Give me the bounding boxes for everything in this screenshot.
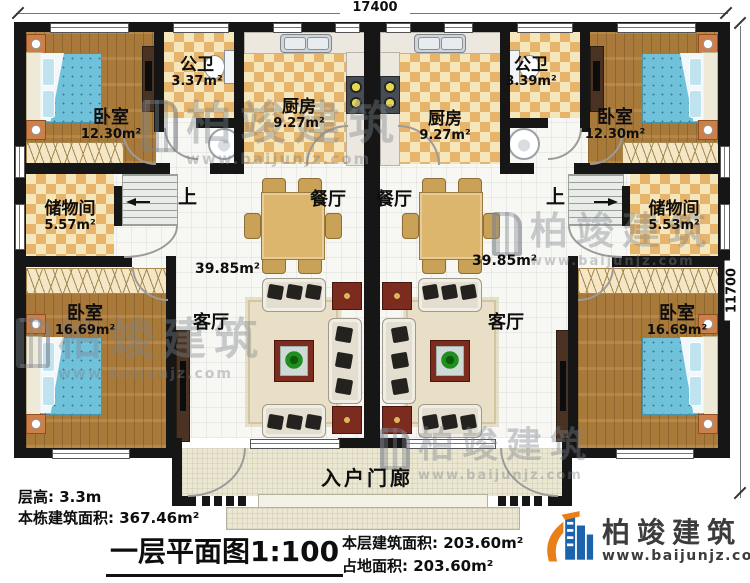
land-area-note: 占地面积: 203.60m² bbox=[342, 555, 493, 576]
sofa bbox=[262, 278, 326, 312]
room-area: 5.53m² bbox=[630, 219, 718, 234]
plant-icon bbox=[284, 350, 304, 370]
tv-icon bbox=[593, 61, 600, 91]
window bbox=[444, 23, 473, 33]
watermark-url: www.baijunjz.com bbox=[418, 468, 594, 483]
room-name: 卧室 bbox=[56, 108, 166, 128]
chair bbox=[244, 213, 261, 239]
room-area: 12.30m² bbox=[56, 128, 166, 143]
sofa bbox=[418, 278, 482, 312]
porch-column bbox=[238, 496, 246, 506]
porch-column bbox=[522, 496, 530, 506]
porch-column bbox=[214, 496, 222, 506]
watermark-url: www.baijunjz.com bbox=[530, 254, 714, 269]
sofa-set-right bbox=[380, 278, 496, 438]
building-area-note: 本栋建筑面积: 367.46m² bbox=[18, 507, 199, 528]
room-name: 厨房 bbox=[390, 110, 500, 129]
room-name: 储物间 bbox=[630, 200, 718, 219]
dimension-line-right bbox=[740, 26, 741, 498]
bed-pillow bbox=[42, 58, 55, 86]
porch-step-lower bbox=[226, 507, 520, 530]
wall bbox=[500, 32, 510, 174]
cushion bbox=[305, 284, 322, 300]
room-name: 公卫 bbox=[496, 56, 566, 75]
dining-table bbox=[419, 192, 483, 260]
wall bbox=[114, 186, 122, 226]
window bbox=[720, 146, 730, 178]
wall-center bbox=[364, 22, 380, 448]
bed-pillow bbox=[689, 342, 702, 372]
room-label-dining-left: 餐厅 bbox=[310, 185, 346, 211]
window bbox=[173, 23, 229, 33]
porch-column bbox=[226, 496, 234, 506]
room-area: 3.37m² bbox=[162, 75, 232, 90]
chair bbox=[325, 213, 342, 239]
stairs-up-label-left: 上 bbox=[178, 182, 197, 209]
room-area: 9.27m² bbox=[244, 117, 354, 132]
tv-icon bbox=[145, 61, 152, 91]
room-label-kitchen-left: 厨房 9.27m² bbox=[244, 98, 354, 132]
stairs-direction-arrow bbox=[126, 192, 150, 202]
sofa bbox=[382, 318, 416, 404]
floor-height-note: 层高: 3.3m bbox=[18, 486, 101, 507]
sink-basin bbox=[418, 37, 440, 50]
room-name: 厨房 bbox=[244, 98, 354, 117]
tv-icon bbox=[560, 361, 566, 411]
dimension-top-label: 17400 bbox=[340, 0, 410, 15]
cushion bbox=[286, 284, 303, 300]
window bbox=[517, 23, 573, 33]
room-label-living-right: 客厅 bbox=[488, 308, 524, 334]
window bbox=[386, 23, 411, 33]
floor-plan-canvas: 柏竣建筑 www.baijunjz.com 柏竣建筑 www.baijunjz.… bbox=[0, 0, 750, 583]
sink-basin bbox=[284, 37, 306, 50]
cushion bbox=[391, 378, 409, 396]
cushion bbox=[335, 378, 353, 396]
room-label-storage-right: 储物间 5.53m² bbox=[630, 200, 718, 234]
room-label-bathroom-left: 公卫 3.37m² bbox=[162, 56, 232, 90]
cushion bbox=[391, 352, 409, 370]
company-website: www.baijunjz.com bbox=[602, 548, 750, 564]
wall bbox=[14, 256, 132, 267]
cushion bbox=[422, 284, 439, 300]
room-label-living-left: 客厅 bbox=[193, 308, 229, 334]
nightstand bbox=[698, 34, 718, 54]
cushion bbox=[335, 326, 353, 344]
cushion bbox=[391, 326, 409, 344]
cushion bbox=[460, 284, 477, 300]
bed-pillow bbox=[42, 90, 55, 118]
room-label-bathroom-right: 公卫 3.39m² bbox=[496, 56, 566, 90]
cushion bbox=[267, 414, 284, 430]
wall bbox=[500, 163, 534, 174]
tv-desk bbox=[590, 46, 604, 112]
porch-wall bbox=[548, 496, 572, 506]
hall-area-right: 39.85m² bbox=[472, 253, 537, 269]
room-area: 16.69m² bbox=[622, 324, 732, 339]
stairs-direction-arrow bbox=[594, 192, 618, 202]
side-cabinet bbox=[332, 406, 362, 434]
room-label-bedroom-bottom-right: 卧室 16.69m² bbox=[622, 304, 732, 339]
dimension-right-label: 11700 bbox=[725, 261, 740, 321]
plant-icon bbox=[440, 350, 460, 370]
coffee-table bbox=[430, 340, 470, 382]
hall-area-left: 39.85m² bbox=[195, 261, 260, 277]
bed-pillow bbox=[689, 90, 702, 118]
porch-wall bbox=[172, 496, 196, 506]
room-area: 12.30m² bbox=[560, 128, 670, 143]
cushion bbox=[286, 414, 303, 430]
sink-basin bbox=[307, 37, 329, 50]
nightstand bbox=[698, 120, 718, 140]
side-cabinet bbox=[382, 282, 412, 310]
wall bbox=[500, 118, 548, 128]
room-area: 9.27m² bbox=[390, 129, 500, 144]
cushion bbox=[335, 352, 353, 370]
bed-headboard bbox=[702, 52, 718, 124]
room-name: 储物间 bbox=[26, 200, 114, 219]
washbasin-icon bbox=[508, 128, 540, 160]
plan-title: 一层平面图1:100 bbox=[106, 530, 343, 577]
porch-column bbox=[498, 496, 506, 506]
window bbox=[616, 449, 694, 459]
window bbox=[15, 204, 25, 250]
room-name: 卧室 bbox=[622, 304, 732, 324]
kitchen-sink bbox=[280, 34, 332, 53]
room-area: 5.57m² bbox=[26, 219, 114, 234]
window bbox=[50, 23, 129, 33]
window bbox=[617, 23, 696, 33]
window bbox=[52, 449, 130, 459]
chair bbox=[402, 213, 419, 239]
side-cabinet bbox=[332, 282, 362, 310]
porch-label: 入户门廊 bbox=[301, 462, 433, 491]
room-label-bedroom-bottom-left: 卧室 16.69m² bbox=[30, 304, 140, 339]
window bbox=[15, 146, 25, 178]
window bbox=[720, 204, 730, 250]
porch-column bbox=[510, 496, 518, 506]
bed-pillow bbox=[689, 58, 702, 86]
window bbox=[273, 23, 302, 33]
cushion bbox=[441, 284, 458, 300]
sofa bbox=[262, 404, 326, 438]
nightstand bbox=[26, 34, 46, 54]
room-label-kitchen-right: 厨房 9.27m² bbox=[390, 110, 500, 144]
room-label-dining-right: 餐厅 bbox=[376, 185, 412, 211]
nightstand bbox=[26, 120, 46, 140]
watermark-text: 柏竣建筑 bbox=[418, 428, 594, 464]
nightstand bbox=[26, 414, 46, 434]
room-label-bedroom-top-left: 卧室 12.30m² bbox=[56, 108, 166, 143]
bed-pillow bbox=[689, 376, 702, 406]
room-label-storage-left: 储物间 5.57m² bbox=[26, 200, 114, 234]
window bbox=[335, 23, 360, 33]
company-logo: 柏竣建筑 www.baijunjz.com bbox=[540, 508, 750, 574]
room-area: 16.69m² bbox=[30, 324, 140, 339]
stairs-up-label-right: 上 bbox=[546, 182, 565, 209]
watermark-url: www.baijunjz.com bbox=[186, 150, 402, 168]
wall bbox=[574, 163, 730, 174]
window bbox=[250, 439, 340, 449]
room-area: 3.39m² bbox=[496, 75, 566, 90]
nightstand bbox=[698, 414, 718, 434]
room-name: 公卫 bbox=[162, 56, 232, 75]
cushion bbox=[267, 284, 284, 300]
watermark-url: www.baijunjz.com bbox=[58, 366, 266, 382]
kitchen-sink bbox=[414, 34, 466, 53]
watermark-logo-icon bbox=[492, 212, 522, 256]
this-floor-area-note: 本层建筑面积: 203.60m² bbox=[342, 532, 523, 553]
room-label-bedroom-top-right: 卧室 12.30m² bbox=[560, 108, 670, 143]
porch-column bbox=[202, 496, 210, 506]
company-logo-icon bbox=[540, 508, 594, 574]
cushion bbox=[305, 414, 322, 430]
porch-column bbox=[534, 496, 542, 506]
coffee-table bbox=[274, 340, 314, 382]
company-name: 柏竣建筑 bbox=[602, 518, 750, 547]
sofa bbox=[328, 318, 362, 404]
bed-headboard bbox=[702, 336, 718, 416]
wall bbox=[568, 256, 578, 448]
room-name: 卧室 bbox=[560, 108, 670, 128]
sink-basin bbox=[441, 37, 463, 50]
room-name: 卧室 bbox=[30, 304, 140, 324]
